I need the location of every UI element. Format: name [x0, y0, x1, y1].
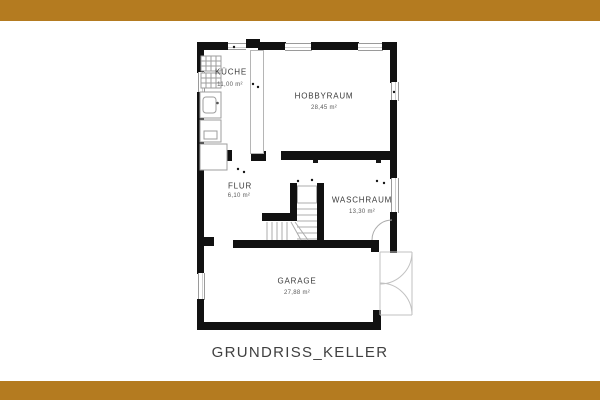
waschraum-door-arc — [372, 220, 392, 240]
room-label-flur: FLUR — [228, 182, 252, 191]
room-area-garage: 27,88 m² — [284, 290, 310, 296]
room-label-hobbyraum: HOBBYRAUM — [295, 92, 354, 101]
room-area-flur: 6,10 m² — [228, 193, 250, 199]
kitchen-faucet — [216, 102, 219, 105]
floorplan-details — [0, 0, 600, 400]
kitchen-sink-basin — [203, 97, 216, 113]
stair-treads-lower — [267, 222, 287, 240]
room-area-waschraum: 13,30 m² — [349, 209, 375, 215]
floorplan-page: KÜCHE 11,00 m² HOBBYRAUM 28,45 m² FLUR 6… — [0, 0, 600, 400]
stair-treads-upper — [297, 209, 317, 239]
plan-title: GRUNDRISS_KELLER — [0, 344, 600, 361]
room-label-kueche: KÜCHE — [215, 68, 247, 77]
stair-landing — [298, 186, 317, 203]
room-area-kueche: 11,00 m² — [217, 82, 243, 88]
room-label-garage: GARAGE — [277, 277, 316, 286]
kitchen-counter — [200, 144, 227, 170]
kitchen-oven-door — [204, 131, 217, 139]
garage-double-door — [380, 252, 412, 315]
stair-winders — [291, 222, 308, 240]
room-label-waschraum: WASCHRAUM — [332, 196, 392, 205]
room-area-hobbyraum: 28,45 m² — [311, 105, 337, 111]
opening-markers — [233, 46, 395, 184]
